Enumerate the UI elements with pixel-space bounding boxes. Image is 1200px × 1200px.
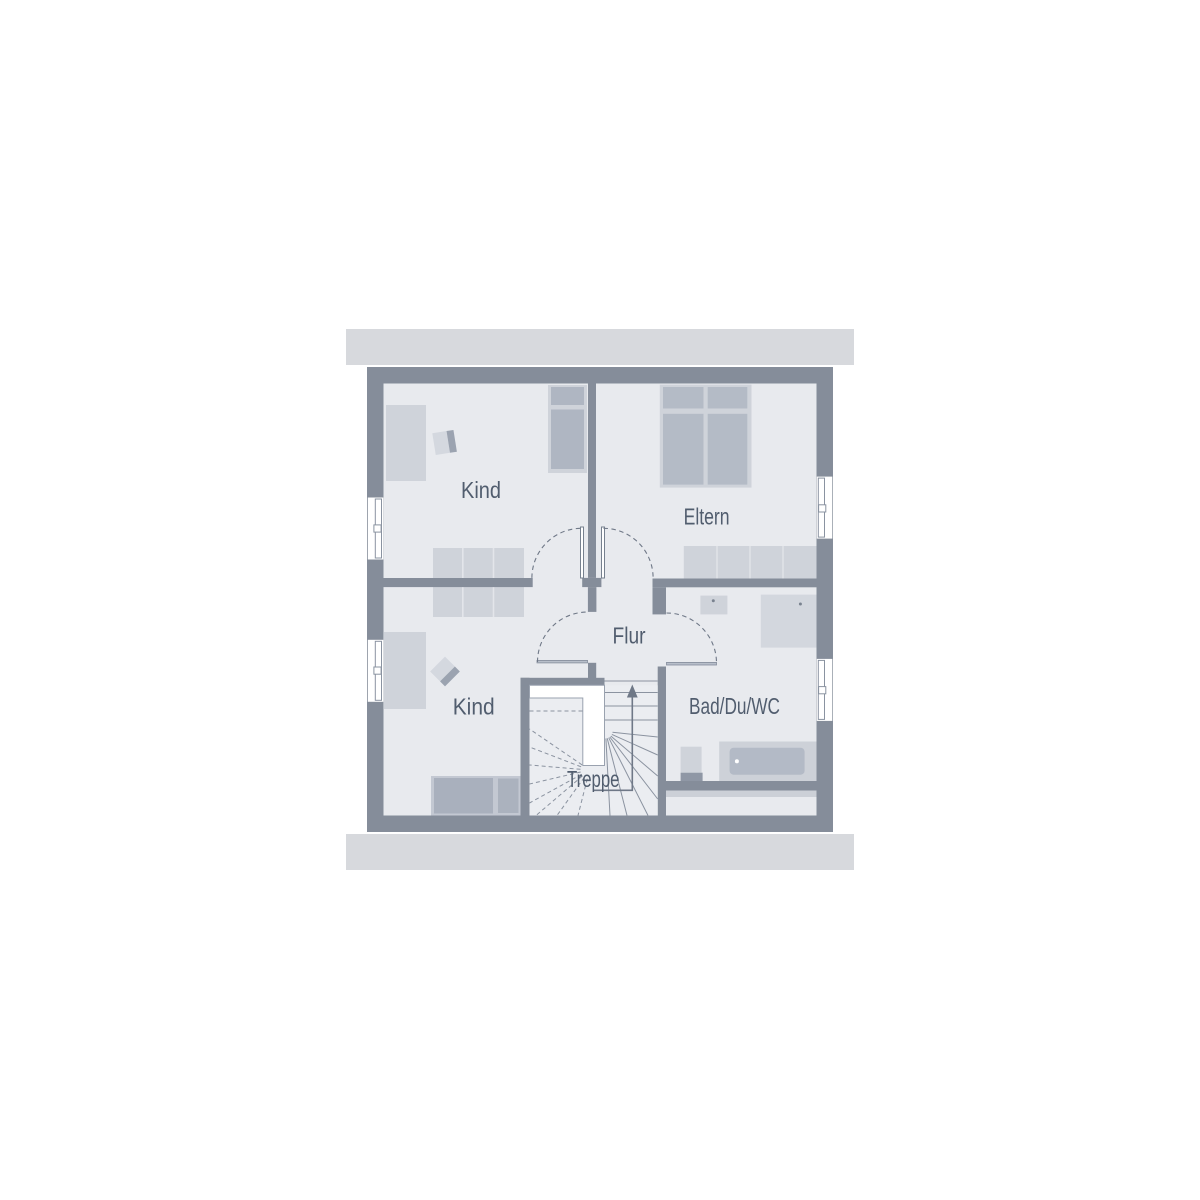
svg-text:Bad/Du/WC: Bad/Du/WC bbox=[689, 693, 780, 719]
svg-text:Kind: Kind bbox=[453, 694, 495, 720]
svg-text:Kind: Kind bbox=[461, 477, 501, 503]
svg-text:Flur: Flur bbox=[613, 623, 646, 649]
svg-text:Treppe: Treppe bbox=[567, 766, 620, 792]
svg-text:Eltern: Eltern bbox=[684, 504, 730, 530]
